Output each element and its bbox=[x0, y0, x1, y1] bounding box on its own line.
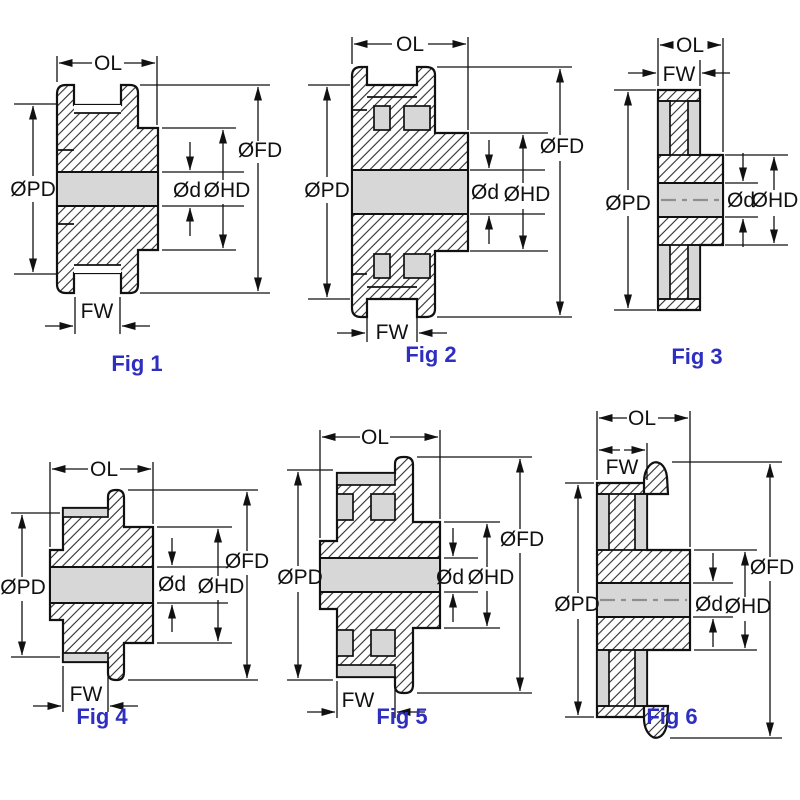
fig1-label-pd: ØPD bbox=[10, 178, 56, 201]
fig5-clamp-block bbox=[371, 494, 395, 520]
technical-drawing-canvas: OL ØPD ØFD ØHD Ød FW Fig 1 bbox=[0, 0, 800, 800]
fig5-label-fd: ØFD bbox=[500, 528, 544, 551]
fig3-web-recess bbox=[658, 245, 670, 299]
fig5-clamp-block bbox=[337, 630, 353, 656]
fig6-label-pd: ØPD bbox=[554, 593, 600, 616]
fig5-label-pd: ØPD bbox=[277, 566, 323, 589]
fig4-label-fd: ØFD bbox=[225, 550, 269, 573]
fig5-label-hd: ØHD bbox=[468, 566, 515, 589]
fig2-clamp-block bbox=[374, 254, 390, 278]
fig2-label-fw: FW bbox=[376, 321, 409, 344]
fig4-belt-band-top bbox=[63, 508, 108, 517]
fig1-belt-band-top bbox=[74, 105, 121, 113]
fig5-label-fw: FW bbox=[342, 689, 375, 712]
fig4-label-fw: FW bbox=[70, 683, 103, 706]
fig3-dim-fw: FW bbox=[628, 60, 730, 86]
fig5-belt-band-bottom bbox=[337, 665, 395, 677]
fig4-label-d: Ød bbox=[158, 573, 186, 596]
fig5-caption: Fig 5 bbox=[376, 704, 427, 729]
fig3-web-recess bbox=[658, 101, 670, 155]
fig1-label-fd: ØFD bbox=[238, 139, 282, 162]
fig5-label-ol: OL bbox=[361, 426, 389, 449]
fig2-label-d: Ød bbox=[471, 181, 499, 204]
fig6-web-recess bbox=[635, 650, 647, 706]
fig2-caption: Fig 2 bbox=[405, 342, 456, 367]
fig6-dim-fw: FW bbox=[599, 443, 647, 480]
fig6-web-recess bbox=[597, 494, 609, 550]
fig6-web-recess bbox=[597, 650, 609, 706]
fig4-belt-band-bottom bbox=[63, 653, 108, 662]
figure-6: OL FW ØPD ØFD ØHD Ød Fig 6 bbox=[554, 407, 794, 738]
fig1-label-d: Ød bbox=[173, 179, 201, 202]
fig4-bore bbox=[50, 567, 153, 603]
fig2-label-pd: ØPD bbox=[304, 179, 350, 202]
fig2-clamp-block bbox=[404, 254, 430, 278]
fig1-bore bbox=[57, 172, 158, 206]
fig1-label-ol: OL bbox=[94, 52, 122, 75]
fig5-clamp-block bbox=[371, 630, 395, 656]
fig6-web-recess bbox=[635, 494, 647, 550]
fig4-label-ol: OL bbox=[90, 458, 118, 481]
fig2-clamp-block bbox=[404, 106, 430, 130]
fig3-caption: Fig 3 bbox=[671, 344, 722, 369]
figure-2: OL ØPD ØFD ØHD Ød FW Fig 2 bbox=[304, 33, 584, 367]
fig5-bore bbox=[320, 558, 440, 592]
fig1-dim-fw: FW bbox=[45, 297, 150, 334]
fig4-caption: Fig 4 bbox=[76, 704, 128, 729]
fig1-dim-pd: ØPD bbox=[10, 104, 56, 274]
fig6-label-hd: ØHD bbox=[725, 595, 772, 618]
fig3-label-ol: OL bbox=[676, 34, 704, 57]
fig2-label-hd: ØHD bbox=[504, 183, 551, 206]
fig2-dim-pd: ØPD bbox=[304, 85, 350, 299]
fig5-label-d: Ød bbox=[436, 566, 464, 589]
fig2-bore bbox=[352, 170, 468, 214]
fig5-clamp-block bbox=[337, 494, 353, 520]
fig1-belt-band-bottom bbox=[74, 265, 121, 273]
fig4-label-hd: ØHD bbox=[198, 575, 245, 598]
fig6-dim-pd: ØPD bbox=[554, 483, 600, 717]
fig6-label-d: Ød bbox=[695, 593, 723, 616]
fig6-label-ol: OL bbox=[628, 407, 656, 430]
fig3-label-hd: ØHD bbox=[752, 189, 799, 212]
fig5-belt-band-top bbox=[337, 473, 395, 485]
fig6-label-fd: ØFD bbox=[750, 556, 794, 579]
pulley-diagram-sheet: OL ØPD ØFD ØHD Ød FW Fig 1 bbox=[0, 0, 800, 800]
fig3-label-fw: FW bbox=[663, 63, 696, 86]
figure-3: OL FW ØPD Ød ØHD Fig 3 bbox=[605, 34, 798, 369]
fig6-label-fw: FW bbox=[606, 456, 639, 479]
figure-4: OL ØPD ØFD ØHD Ød FW Fig 4 bbox=[0, 458, 269, 729]
fig1-label-fw: FW bbox=[81, 300, 114, 323]
fig6-caption: Fig 6 bbox=[646, 704, 697, 729]
fig1-label-hd: ØHD bbox=[204, 179, 251, 202]
fig3-dim-pd: ØPD bbox=[605, 90, 656, 310]
figure-5: OL ØPD ØFD ØHD Ød FW Fig 5 bbox=[277, 426, 544, 729]
figure-1: OL ØPD ØFD ØHD Ød FW Fig 1 bbox=[10, 52, 282, 376]
fig3-web-recess bbox=[688, 245, 700, 299]
fig1-caption: Fig 1 bbox=[111, 351, 162, 376]
fig3-label-pd: ØPD bbox=[605, 192, 651, 215]
fig2-label-ol: OL bbox=[396, 33, 424, 56]
fig2-clamp-block bbox=[374, 106, 390, 130]
fig4-label-pd: ØPD bbox=[0, 576, 46, 599]
fig2-label-fd: ØFD bbox=[540, 135, 584, 158]
fig3-web-recess bbox=[688, 101, 700, 155]
